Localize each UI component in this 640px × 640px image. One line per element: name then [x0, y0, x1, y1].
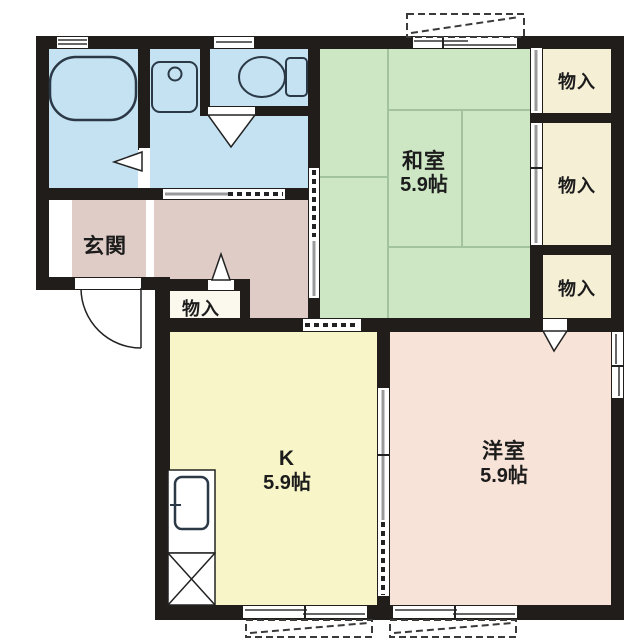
wall-closet-divider-1	[530, 113, 624, 123]
closet-top-sliding-door	[531, 48, 542, 113]
equipment-space	[168, 553, 215, 605]
kitchen-sink-counter	[168, 470, 215, 553]
label-closet-middle: 物入	[558, 175, 596, 196]
washroom-sliding-door	[163, 189, 285, 199]
label-kitchen: K	[279, 447, 295, 470]
kitchen-sliding-door	[303, 319, 361, 331]
floor-plan-drawing: 和室 5.9帖 K 5.9帖 洋室 5.9帖 玄関 物入 物入 物入 物入	[0, 0, 640, 640]
label-closet-bottom: 物入	[558, 278, 596, 299]
label-closet-hall: 物入	[182, 298, 220, 319]
wall-washroom-toilet	[200, 36, 210, 116]
bathroom-window	[57, 37, 88, 48]
wall-closet-hall-right	[240, 279, 250, 320]
wall-bath-washroom	[138, 36, 150, 150]
kitchen-window	[243, 606, 367, 618]
label-washitsu: 和室	[402, 149, 446, 173]
label-closet-top: 物入	[558, 71, 596, 92]
label-youshitsu-size: 5.9帖	[480, 464, 528, 487]
label-youshitsu: 洋室	[482, 439, 526, 463]
genkan-step-line	[146, 200, 154, 277]
youshitsu-side-window	[612, 332, 623, 398]
floor-plan-page: 和室 5.9帖 K 5.9帖 洋室 5.9帖 玄関 物入 物入 物入 物入	[0, 0, 640, 640]
label-kitchen-size: 5.9帖	[263, 471, 311, 494]
washitsu-entry-sliding-door	[309, 168, 319, 298]
closet-middle-sliding-door	[531, 123, 542, 245]
wall-closet-hall-top	[155, 279, 250, 291]
label-washitsu-size: 5.9帖	[400, 173, 448, 196]
hall-extension	[250, 280, 308, 320]
toilet-window	[214, 37, 254, 48]
wall-left	[36, 36, 49, 290]
youshitsu-bottom-window	[393, 606, 517, 618]
wall-closet-divider-2	[530, 245, 624, 255]
washitsu-window	[413, 37, 517, 48]
kitchen-youshitsu-sliding-door	[378, 388, 389, 596]
label-genkan: 玄関	[83, 234, 127, 258]
room-bathroom	[46, 48, 138, 188]
